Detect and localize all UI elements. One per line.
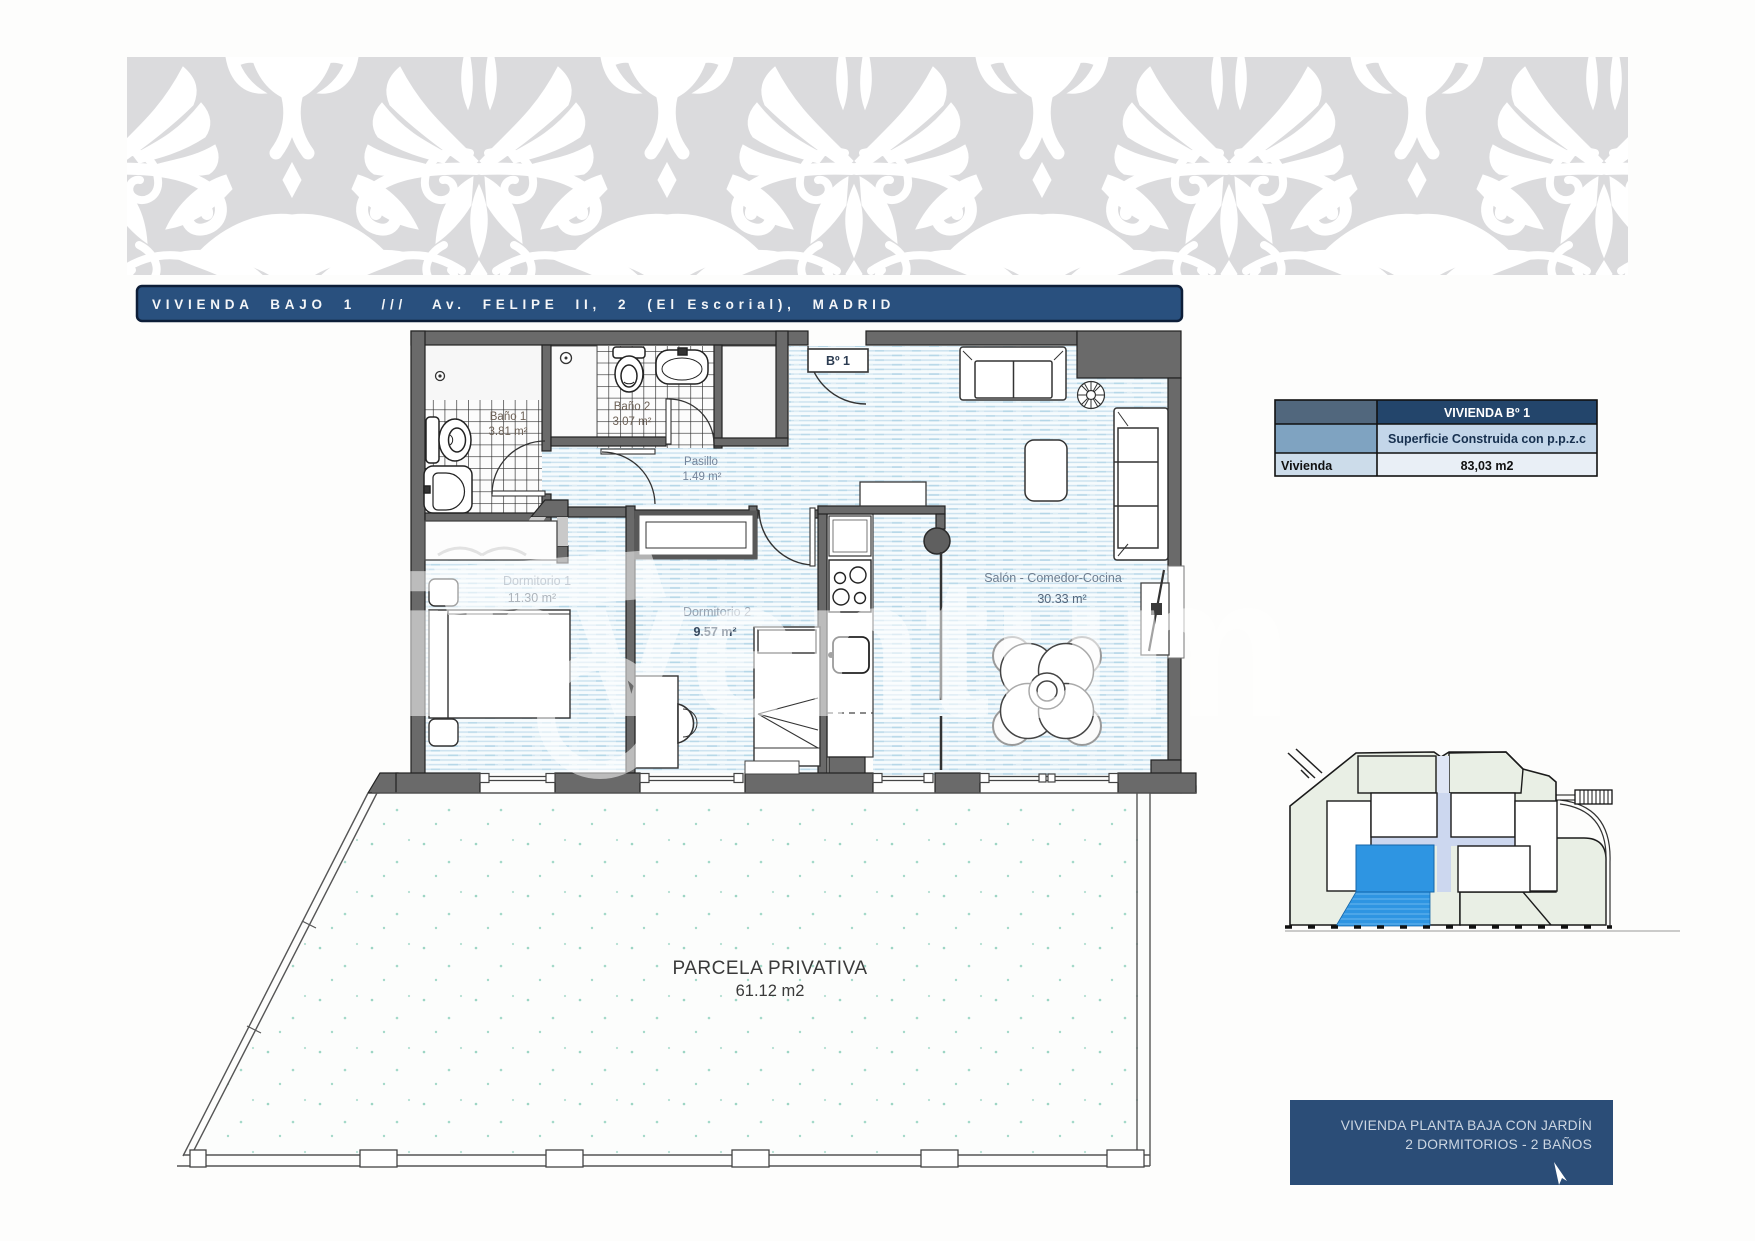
svg-text:Superficie Construida con p.p.: Superficie Construida con p.p.z.c (1388, 432, 1586, 446)
svg-text:1.49 m²: 1.49 m² (683, 471, 722, 483)
svg-text:Bº 1: Bº 1 (826, 354, 850, 368)
svg-text:83,03 m2: 83,03 m2 (1461, 459, 1514, 473)
svg-text:Baño 1: Baño 1 (490, 411, 526, 423)
svg-text:3.81 m²: 3.81 m² (489, 426, 528, 438)
svg-text:3.07 m²: 3.07 m² (613, 416, 652, 428)
svg-text:61.12 m2: 61.12 m2 (736, 982, 805, 1000)
svg-text:Pasillo: Pasillo (684, 456, 718, 468)
svg-text:inventum: inventum (397, 536, 1294, 759)
svg-text:VIVIENDA BAJO 1 /// Av.: VIVIENDA BAJO 1 /// Av. FELIPE II, 2 (El… (152, 297, 895, 312)
svg-text:VIVIENDA PLANTA BAJA CON JARDÍ: VIVIENDA PLANTA BAJA CON JARDÍN (1341, 1117, 1592, 1133)
svg-text:VIVIENDA Bº 1: VIVIENDA Bº 1 (1444, 406, 1530, 420)
svg-text:Vivienda: Vivienda (1281, 459, 1333, 473)
svg-text:Baño 2: Baño 2 (614, 401, 650, 413)
svg-text:PARCELA PRIVATIVA: PARCELA PRIVATIVA (672, 958, 867, 979)
svg-text:2 DORMITORIOS - 2 BAÑOS: 2 DORMITORIOS - 2 BAÑOS (1405, 1136, 1592, 1152)
